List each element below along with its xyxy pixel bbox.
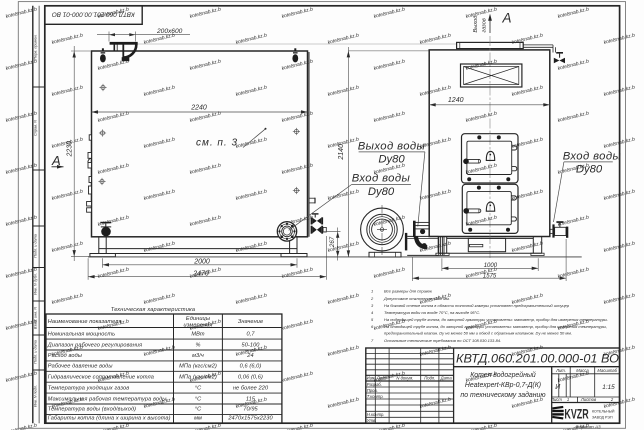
svg-text:Т.контр.: Т.контр.: [367, 394, 384, 399]
svg-text:Перв. примен.: Перв. примен.: [34, 34, 38, 59]
svg-text:А: А: [502, 11, 512, 26]
svg-text:Лит.: Лит.: [555, 368, 566, 373]
svg-text:Максимальная рабочая температу: Максимальная рабочая температура воды: [48, 396, 167, 402]
svg-text:На подводящей трубе котла, д: На подводящей трубе котла, до запорной а…: [384, 317, 608, 322]
svg-text:115: 115: [246, 396, 256, 402]
svg-text:мм: мм: [194, 416, 202, 422]
svg-text:КВТД.060.201.00.000-01 ВО: КВТД.060.201.00.000-01 ВО: [52, 11, 135, 18]
svg-text:Номинальная мощность: Номинальная мощность: [48, 331, 115, 337]
svg-text:2230: 2230: [67, 141, 74, 158]
svg-text:1240: 1240: [448, 97, 464, 104]
svg-text:Подп. и дата: Подп. и дата: [34, 234, 38, 258]
svg-text:Инв. N подл.: Инв. N подл.: [34, 385, 38, 407]
svg-text:Допустимое отклонение ±100 мм: Допустимое отклонение ±100 мм.: [383, 296, 450, 301]
svg-text:МПа (кгс/см2): МПа (кгс/см2): [179, 375, 217, 381]
svg-text:KVZR: KVZR: [564, 406, 588, 422]
svg-text:Диапазон рабочего регулировани: Диапазон рабочего регулирования: [47, 342, 142, 348]
svg-text:измерения: измерения: [184, 322, 213, 328]
svg-text:1:15: 1:15: [602, 384, 615, 391]
svg-text:предохранительный клапан. Dу н: предохранительный клапан. Dу не менее 50…: [384, 331, 572, 336]
svg-text:Вход воды: Вход воды: [352, 173, 411, 185]
svg-text:Остальные технические требован: Остальные технические требования по ОСТ …: [384, 338, 501, 343]
svg-text:Температура уходящих газов: Температура уходящих газов: [48, 385, 129, 391]
svg-text:1: 1: [567, 397, 569, 402]
svg-text:Лист: Лист: [376, 376, 388, 381]
svg-text:2140: 2140: [338, 144, 345, 161]
svg-text:2000: 2000: [193, 259, 210, 266]
svg-text:Расход воды: Расход воды: [48, 353, 82, 359]
svg-text:Техническая характеристика: Техническая характеристика: [111, 307, 195, 313]
svg-text:267: 267: [329, 236, 336, 248]
svg-text:Листов: Листов: [580, 397, 597, 402]
svg-text:см. п. 3: см. п. 3: [196, 138, 238, 149]
svg-text:°С: °С: [195, 396, 202, 402]
svg-text:200х600: 200х600: [156, 28, 183, 35]
svg-text:по техническому заданию: по техническому заданию: [460, 391, 545, 399]
svg-text:1575: 1575: [483, 273, 497, 279]
svg-text:1: 1: [371, 289, 373, 294]
svg-text:На боковой стенке котла в обла: На боковой стенке котла в области топочн…: [384, 303, 570, 308]
svg-text:Единицы: Единицы: [186, 316, 210, 322]
svg-text:МПа (кгс/см2): МПа (кгс/см2): [179, 364, 217, 370]
svg-text:ЗАВОД РЭП: ЗАВОД РЭП: [592, 416, 613, 420]
svg-text:Вход воды: Вход воды: [563, 150, 622, 162]
svg-text:Инв. N дубл.: Инв. N дубл.: [34, 273, 38, 295]
svg-text:Пров.: Пров.: [367, 388, 378, 393]
svg-text:Утв.: Утв.: [367, 418, 377, 423]
svg-text:Наименование показателя: Наименование показателя: [48, 319, 122, 325]
svg-text:Значение: Значение: [238, 319, 263, 325]
svg-text:Dy80: Dy80: [368, 186, 395, 198]
svg-text:Dy80: Dy80: [378, 153, 405, 165]
svg-text:2470х1575х2230: 2470х1575х2230: [227, 416, 273, 422]
svg-text:N докум.: N докум.: [396, 376, 413, 381]
svg-text:Dy80: Dy80: [576, 164, 603, 176]
svg-text:%: %: [195, 342, 200, 348]
svg-text:°С: °С: [195, 385, 202, 391]
svg-text:Н.контр.: Н.контр.: [367, 412, 385, 417]
svg-text:м3/ч: м3/ч: [192, 353, 204, 359]
svg-text:Подп. и дата: Подп. и дата: [34, 340, 38, 364]
svg-text:Справ. N: Справ. N: [34, 120, 38, 136]
svg-text:Масштаб: Масштаб: [597, 368, 617, 373]
svg-text:0,6 (6,0): 0,6 (6,0): [240, 364, 262, 370]
svg-text:Котел водогрейный: Котел водогрейный: [470, 371, 536, 379]
svg-text:МВт: МВт: [191, 331, 205, 337]
svg-text:Взам. инв. N: Взам. инв. N: [34, 307, 38, 329]
svg-text:КОТЕЛЬНЫЙ: КОТЕЛЬНЫЙ: [592, 410, 615, 414]
svg-text:2240: 2240: [190, 105, 207, 112]
svg-text:Разраб.: Разраб.: [367, 382, 382, 387]
svg-text:°С: °С: [195, 407, 202, 413]
svg-text:70/95: 70/95: [243, 407, 258, 413]
svg-text:1000: 1000: [484, 263, 498, 269]
svg-text:Температура воды (вход/выход): Температура воды (вход/выход): [48, 407, 136, 413]
svg-text:2470: 2470: [192, 271, 209, 278]
svg-text:Формат А3: Формат А3: [575, 424, 601, 429]
svg-text:Изм: Изм: [367, 376, 375, 381]
svg-text:Габариты котла (длина х ширина: Габариты котла (длина х ширина х высота): [48, 416, 171, 422]
svg-text:50-100: 50-100: [241, 342, 260, 348]
svg-text:24: 24: [246, 353, 253, 359]
svg-text:Выход воды: Выход воды: [358, 140, 426, 152]
svg-text:Все размеры для справок: Все размеры для справок: [384, 289, 433, 294]
svg-text:0,06 (0,6): 0,06 (0,6): [238, 375, 263, 381]
svg-text:Дата: Дата: [440, 376, 453, 381]
svg-text:не более 220: не более 220: [233, 385, 269, 391]
svg-text:Гидравлическое сопротивление к: Гидравлическое сопротивление котла: [48, 375, 154, 381]
svg-text:Выход: Выход: [473, 16, 479, 33]
svg-text:газов: газов: [482, 18, 488, 32]
svg-text:На отводящей трубе котла, до з: На отводящей трубе котла, до запорной ар…: [384, 324, 607, 329]
svg-text:Масса: Масса: [576, 368, 589, 373]
svg-text:КВТД.060.201.00.000-01 ВО: КВТД.060.201.00.000-01 ВО: [456, 352, 620, 366]
svg-text:Температура воды на входе 70°: Температура воды на входе 70°С, на выход…: [384, 310, 480, 315]
svg-text:Лист: Лист: [550, 397, 562, 402]
svg-text:Рабочее давление воды: Рабочее давление воды: [48, 364, 113, 370]
svg-text:Heatexpert-КВр-0,7-Д(К): Heatexpert-КВр-0,7-Д(К): [465, 382, 541, 389]
svg-text:Подп.: Подп.: [424, 376, 435, 381]
svg-text:0,7: 0,7: [246, 331, 255, 337]
